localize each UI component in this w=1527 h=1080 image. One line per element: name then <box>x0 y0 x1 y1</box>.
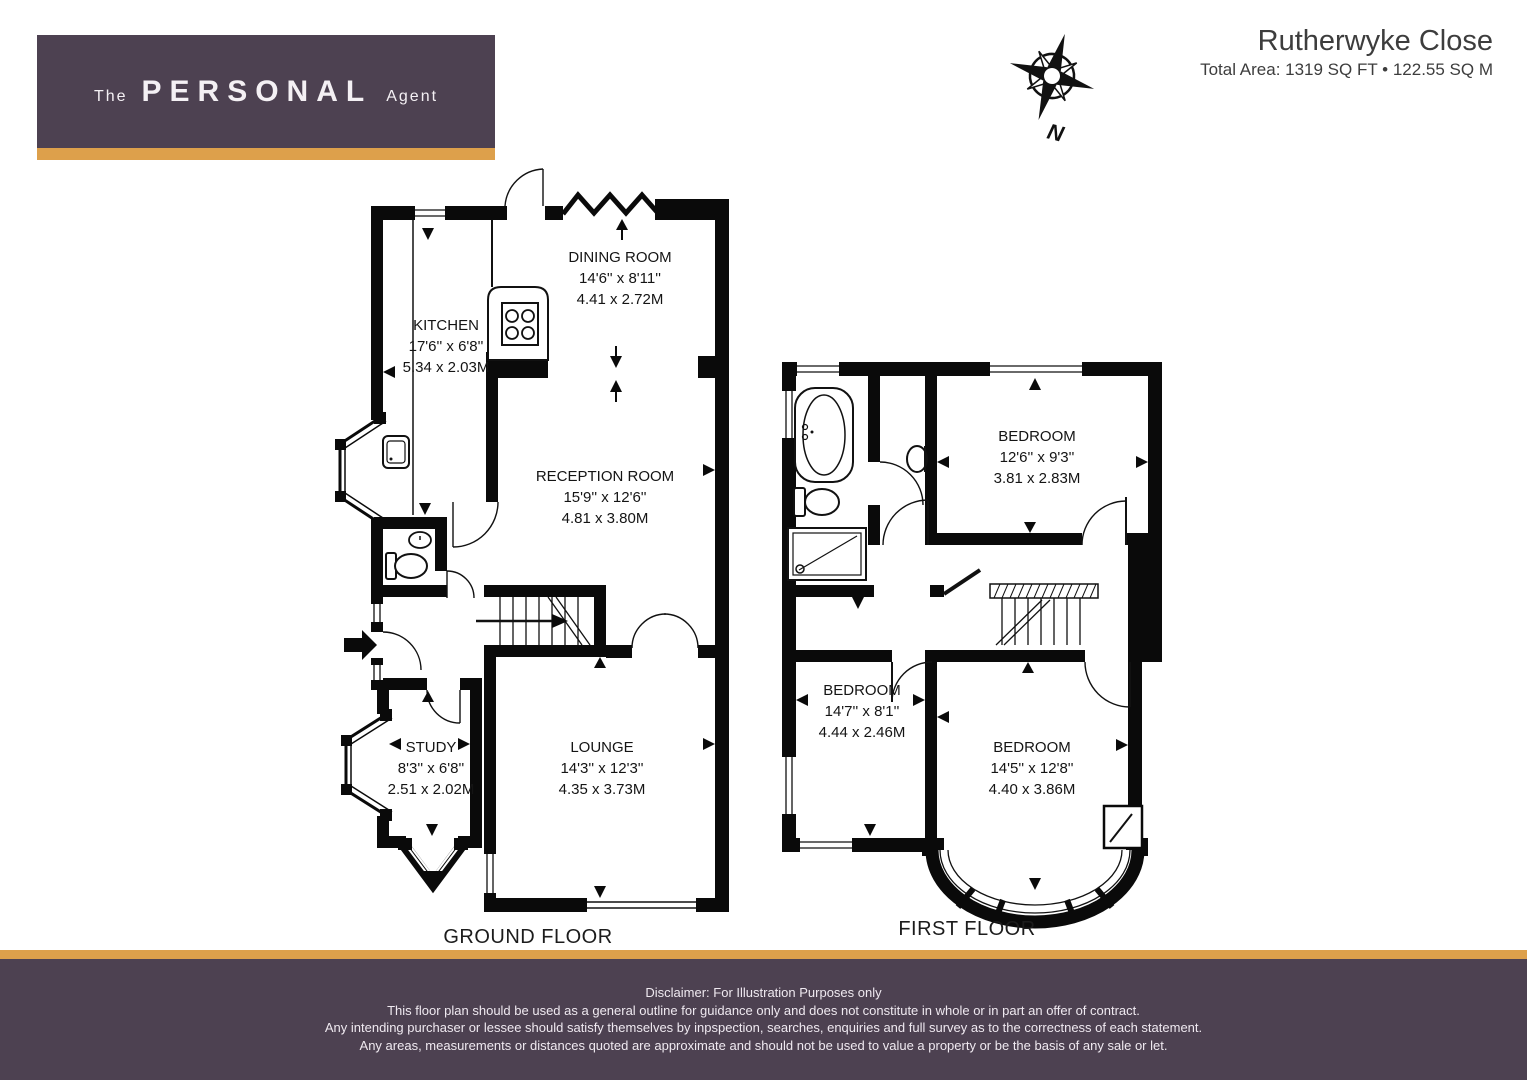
wc-basin-icon <box>409 532 431 548</box>
disclaimer-line-4: Any areas, measurements or distances quo… <box>0 1037 1527 1055</box>
room-dims-imperial: 14'7'' x 8'1'' <box>819 701 906 722</box>
room-dims-imperial: 12'6'' x 9'3'' <box>994 447 1081 468</box>
room-label-kitchen: KITCHEN 17'6'' x 6'8'' 5.34 x 2.03M <box>403 315 490 378</box>
toilet-icon <box>386 553 427 579</box>
room-name: LOUNGE <box>559 737 646 758</box>
room-label-bedroom-1: BEDROOM 12'6'' x 9'3'' 3.81 x 2.83M <box>994 426 1081 489</box>
room-dims-metric: 3.81 x 2.83M <box>994 468 1081 489</box>
study-diamond-bay-window <box>398 838 468 889</box>
floorplan-drawing <box>0 0 1527 1080</box>
room-name: KITCHEN <box>403 315 490 336</box>
ground-floor-caption: GROUND FLOOR <box>443 926 612 949</box>
room-dims-metric: 4.35 x 3.73M <box>559 779 646 800</box>
ground-floor-walls <box>371 199 729 912</box>
room-name: RECEPTION ROOM <box>536 466 674 487</box>
zigzag-opening <box>563 195 657 214</box>
room-name: BEDROOM <box>994 426 1081 447</box>
first-floor-caption: FIRST FLOOR <box>898 918 1035 941</box>
bathtub-icon <box>795 388 853 482</box>
floorplan-page: The PERSONAL Agent Rutherwyke Close Tota… <box>0 0 1527 1080</box>
room-label-reception-room: RECEPTION ROOM 15'9'' x 12'6'' 4.81 x 3.… <box>536 466 674 529</box>
shower-icon <box>788 528 866 580</box>
room-dims-metric: 4.41 x 2.72M <box>568 289 671 310</box>
room-label-bedroom-3: BEDROOM 14'5'' x 12'8'' 4.40 x 3.86M <box>989 737 1076 800</box>
landing-basin-icon <box>907 446 927 472</box>
disclaimer-line-3: Any intending purchaser or lessee should… <box>0 1019 1527 1037</box>
room-dims-metric: 4.40 x 3.86M <box>989 779 1076 800</box>
room-label-study: STUDY 8'3'' x 6'8'' 2.51 x 2.02M <box>388 737 475 800</box>
room-dims-metric: 4.44 x 2.46M <box>819 722 906 743</box>
room-label-lounge: LOUNGE 14'3'' x 12'3'' 4.35 x 3.73M <box>559 737 646 800</box>
study-bay-window <box>341 709 392 821</box>
room-dims-metric: 5.34 x 2.03M <box>403 357 490 378</box>
stairs-first-floor <box>990 584 1098 645</box>
disclaimer-line-2: This floor plan should be used as a gene… <box>0 1002 1527 1020</box>
room-dims-imperial: 15'9'' x 12'6'' <box>536 487 674 508</box>
room-dims-metric: 2.51 x 2.02M <box>388 779 475 800</box>
room-dims-imperial: 14'3'' x 12'3'' <box>559 758 646 779</box>
room-label-bedroom-2: BEDROOM 14'7'' x 8'1'' 4.44 x 2.46M <box>819 680 906 743</box>
room-name: DINING ROOM <box>568 247 671 268</box>
hob-icon <box>488 287 548 360</box>
toilet-first-floor-icon <box>794 488 839 516</box>
kitchen-bay-window <box>335 412 386 529</box>
disclaimer-text: Disclaimer: For Illustration Purposes on… <box>0 984 1527 1054</box>
room-dims-imperial: 14'6'' x 8'11'' <box>568 268 671 289</box>
stairs-ground-floor <box>476 597 590 645</box>
room-dims-imperial: 14'5'' x 12'8'' <box>989 758 1076 779</box>
room-name: STUDY <box>388 737 475 758</box>
bedroom-curved-bay-window <box>932 850 1138 922</box>
room-name: BEDROOM <box>819 680 906 701</box>
footer-gold-stripe <box>0 950 1527 959</box>
room-dims-metric: 4.81 x 3.80M <box>536 508 674 529</box>
room-name: BEDROOM <box>989 737 1076 758</box>
disclaimer-line-1: Disclaimer: For Illustration Purposes on… <box>0 984 1527 1002</box>
entrance-arrow-icon <box>344 630 377 660</box>
kitchen-sink-icon <box>383 436 409 468</box>
room-dims-imperial: 8'3'' x 6'8'' <box>388 758 475 779</box>
room-label-dining-room: DINING ROOM 14'6'' x 8'11'' 4.41 x 2.72M <box>568 247 671 310</box>
room-dims-imperial: 17'6'' x 6'8'' <box>403 336 490 357</box>
